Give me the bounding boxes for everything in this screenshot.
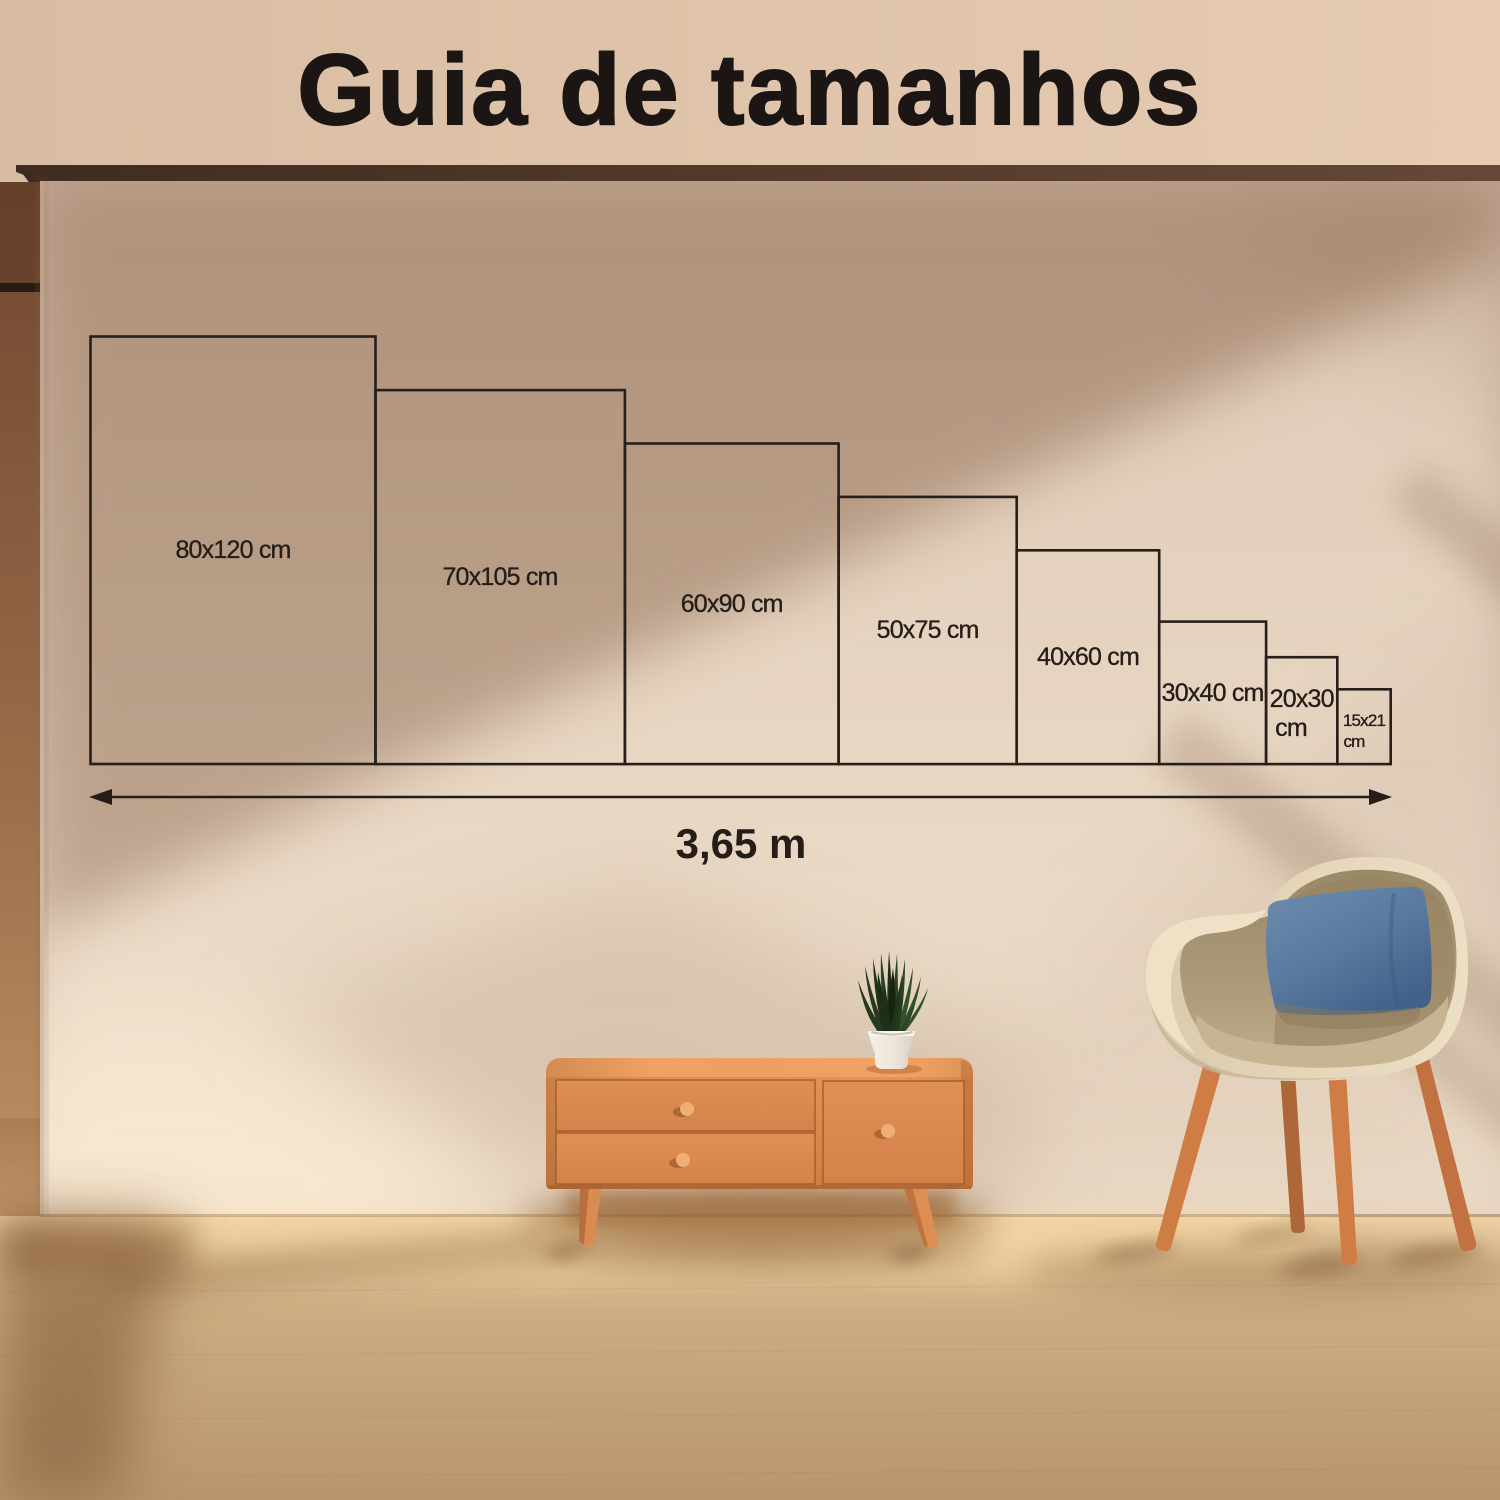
svg-text:60x90 cm: 60x90 cm [681,590,783,618]
svg-text:50x75 cm: 50x75 cm [877,616,979,644]
svg-text:cm: cm [1343,732,1365,751]
svg-text:3,65 m: 3,65 m [676,820,807,867]
svg-text:30x40 cm: 30x40 cm [1162,679,1264,707]
svg-text:20x30: 20x30 [1270,685,1334,713]
svg-text:70x105 cm: 70x105 cm [442,563,557,591]
svg-text:40x60 cm: 40x60 cm [1037,643,1139,671]
svg-text:cm: cm [1275,714,1307,742]
svg-text:15x21: 15x21 [1343,711,1386,730]
svg-text:80x120 cm: 80x120 cm [175,536,290,564]
svg-text:Guia de tamanhos: Guia de tamanhos [297,34,1202,146]
